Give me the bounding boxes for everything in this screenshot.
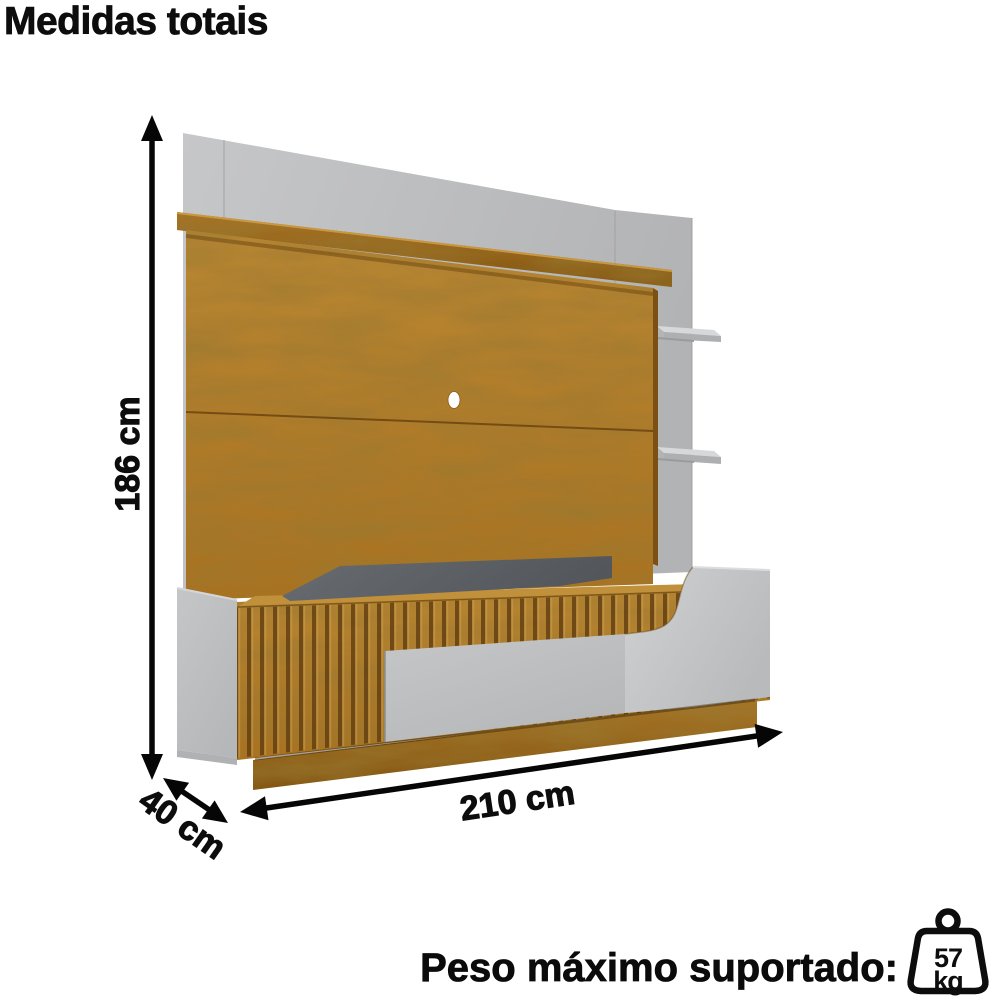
height-arrowhead-bottom [141, 754, 163, 780]
weight-icon-ring [939, 912, 958, 931]
tv-panel-side-edge [653, 288, 658, 566]
product-measurements-page: Medidas totais [0, 0, 1000, 1000]
width-arrowhead-left [240, 796, 269, 820]
width-dimension-label: 210 cm [458, 774, 578, 829]
weight-icon: 57 kg [906, 906, 990, 998]
max-weight-label: Peso máximo suportado: [420, 948, 898, 988]
height-dimension-label: 186 cm [109, 396, 147, 511]
height-arrowhead-top [141, 115, 163, 141]
height-dimension-arrow: 186 cm [109, 115, 163, 780]
width-arrowhead-right [755, 724, 783, 748]
furniture-diagram: 186 cm 210 cm 40 cm [0, 0, 1000, 1000]
console-end-left [177, 588, 237, 758]
depth-dimension-arrow: 40 cm [132, 778, 233, 867]
cable-hole [448, 392, 460, 409]
furniture-illustration [177, 133, 770, 790]
weight-unit: kg [933, 966, 963, 996]
